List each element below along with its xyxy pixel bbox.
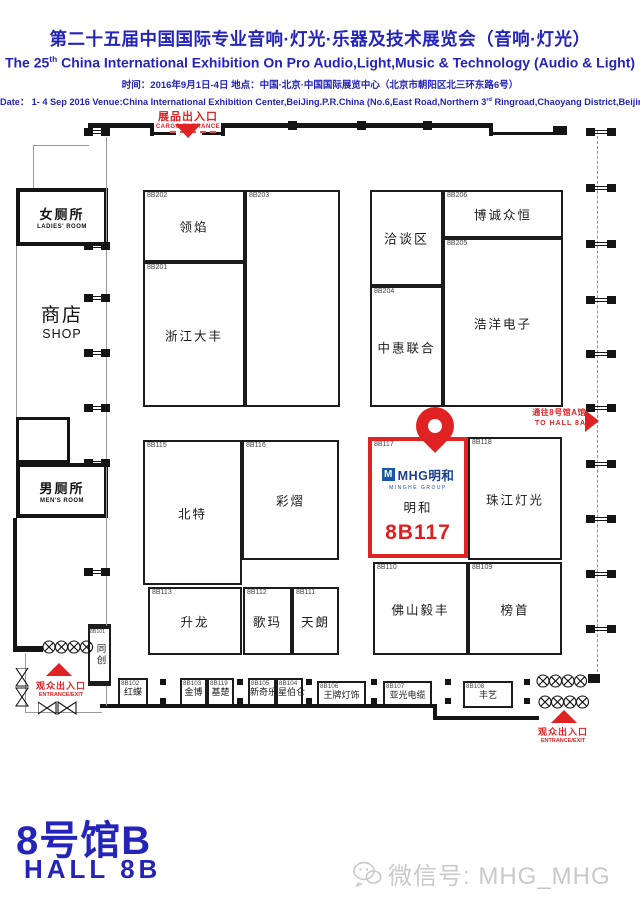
booth-id: 8B204 [374, 288, 394, 295]
wall-segment [33, 145, 89, 146]
entrance-en: ENTRANCE/EXIT [24, 692, 98, 698]
pillar-dot [160, 698, 166, 704]
hall-name-en: HALL 8B [24, 854, 161, 885]
column-marker [586, 296, 616, 304]
booth-8B117-highlighted: 8B117 M MHG明和 MINGHE GROUP 明和 8B117 [368, 437, 468, 558]
mens-room: 男厕所 MEN'S ROOM [16, 463, 108, 518]
booth-name: 红蝶 [120, 687, 146, 698]
cargo-entrance-zh: 展品出入口 [128, 108, 248, 124]
booth-id: 8B118 [472, 439, 492, 446]
meeting-area: 洽谈区 [370, 190, 443, 286]
pillar-dot [160, 679, 166, 685]
column-marker [586, 184, 616, 192]
column-marker [586, 240, 616, 248]
booth-name: 基楚 [209, 687, 232, 698]
shop-zh: 商店 [16, 300, 108, 327]
booth-id: 8B202 [147, 192, 167, 199]
visitor-entrance-left-label: 观众出入口 ENTRANCE/EXIT [24, 679, 98, 698]
wechat-icon [352, 860, 382, 887]
booth-8B203: 8B203 [245, 190, 340, 407]
booth-id: 8B111 [296, 589, 315, 596]
booth-id: 8B113 [152, 589, 172, 596]
booth-id: 8B109 [472, 564, 492, 571]
booth-name: 佛山毅丰 [391, 599, 449, 618]
wall-segment [13, 518, 17, 650]
column-marker [586, 128, 616, 136]
entrance-arrow-icon [46, 663, 72, 676]
booth-name: 金博 [182, 687, 205, 698]
booth-8B202: 8B202领焰 [143, 190, 245, 262]
door-marker [84, 459, 110, 467]
booth-8B102: 8B102红蝶 [118, 678, 148, 706]
booth-name: 新奇乐 [250, 687, 274, 698]
mhg-logo: M MHG明和 [372, 465, 464, 484]
booth-name: 榜首 [500, 599, 529, 618]
shop-en: SHOP [16, 327, 108, 341]
column-marker [586, 570, 616, 578]
door-marker [84, 349, 110, 357]
ladies-room: 女厕所 LADIES' ROOM [16, 188, 108, 246]
booth-id: 8B112 [247, 589, 267, 596]
mens-room-zh: 男厕所 [20, 478, 104, 497]
entrance-en: ENTRANCE/EXIT [528, 738, 598, 744]
booth-name: 星伯仑 [278, 687, 301, 698]
shop-label: 商店 SHOP [16, 300, 108, 341]
booth-8B118: 8B118珠江灯光 [468, 437, 562, 560]
booth-8B115: 8B115北特 [143, 440, 242, 585]
wall-segment [489, 132, 557, 135]
ladies-room-en: LADIES' ROOM [20, 224, 104, 230]
wall-segment [106, 686, 107, 706]
booth-id: 8B106 [319, 683, 364, 690]
booth-id: 8B104 [278, 680, 301, 687]
turnstile-icon [42, 640, 94, 654]
booth-id: 8B105 [250, 680, 274, 687]
booth-name: 亚光电缆 [385, 690, 430, 701]
pillar-dot [524, 679, 530, 685]
cargo-entrance-arrow-icon [175, 124, 201, 138]
wall-segment [13, 646, 43, 652]
booth-8B109: 8B109榜首 [468, 562, 562, 655]
to-hall-8a-arrow-icon [585, 410, 599, 432]
booth-id: 8B110 [377, 564, 397, 571]
door-marker [84, 294, 110, 302]
booth-8B201: 8B201浙江大丰 [143, 262, 245, 407]
booth-name: 同创 [93, 644, 107, 667]
booth-id: 8B102 [120, 680, 146, 687]
column-marker [586, 460, 616, 468]
entrance-zh: 观众出入口 [528, 725, 598, 738]
pillar-dot [371, 698, 377, 704]
pillar-dot [371, 679, 377, 685]
mhg-logo-text: MHG明和 [398, 465, 455, 484]
door-marker [84, 568, 110, 576]
booth-id: 8B205 [447, 240, 467, 247]
meeting-area-label: 洽谈区 [384, 229, 429, 248]
wall-segment [588, 674, 600, 683]
booth-id: 8B117 [374, 441, 394, 448]
booth-name: 珠江灯光 [486, 489, 544, 508]
booth-8B204: 8B204中惠联合 [370, 286, 443, 407]
pillar-dot [237, 698, 243, 704]
booth-8B119: 8B119基楚 [207, 678, 234, 706]
booth-name: 博诚众恒 [474, 205, 532, 224]
watermark: 微信号: MHG_MHG [352, 856, 611, 891]
booth-name: 丰艺 [465, 690, 511, 701]
pillar-dot [306, 698, 312, 704]
wall-segment [433, 716, 539, 720]
exhibition-floor-plan-page: 第二十五届中国国际专业音响·灯光·乐器及技术展览会（音响·灯光） The 25t… [0, 0, 640, 905]
booth-8B103: 8B103金博 [180, 678, 207, 706]
booth-name: 升龙 [180, 612, 209, 631]
ladies-room-zh: 女厕所 [20, 204, 104, 223]
column-marker [586, 515, 616, 523]
wall-segment [100, 704, 437, 708]
door-marker [84, 128, 110, 136]
wall-segment [553, 126, 567, 135]
pillar-dot [524, 698, 530, 704]
entrance-zh: 观众出入口 [24, 679, 98, 692]
booth-id: 8B107 [385, 683, 430, 690]
pillar-dot [306, 679, 312, 685]
turnstile-icon [538, 695, 590, 709]
booth-id: 8B103 [182, 680, 205, 687]
column-marker [586, 625, 616, 633]
booth-id: 8B203 [249, 192, 269, 199]
booth-id: 8B206 [447, 192, 467, 199]
pillar-dot [445, 679, 451, 685]
booth-8B112: 8B112歌玛 [243, 587, 292, 655]
booth-name: 明和 [372, 497, 464, 516]
booth-name: 王牌灯饰 [319, 690, 364, 701]
booth-id: 8B101 [90, 629, 105, 635]
mhg-logo-mark-icon: M [382, 468, 395, 481]
booth-id: 8B116 [246, 442, 266, 449]
booth-8B111: 8B111天朗 [292, 587, 339, 655]
booth-id: 8B115 [147, 442, 167, 449]
to-hall-8a-en: TO HALL 8A [528, 420, 586, 427]
booth-id: 8B108 [465, 683, 511, 690]
booth-8B110: 8B110佛山毅丰 [373, 562, 468, 655]
turnstile-icon [536, 674, 588, 688]
booth-name: 天朗 [301, 612, 330, 631]
booth-8B104: 8B104星伯仑 [276, 678, 303, 706]
booth-name: 彩熠 [276, 491, 305, 510]
booth-name: 歌玛 [253, 612, 282, 631]
gate-icon [38, 701, 78, 715]
door-marker [84, 242, 110, 250]
column-marker [288, 121, 297, 130]
entrance-arrow-icon [551, 710, 577, 723]
floor-plan: 展品出入口 CARGO ENTRANCE 通往8号馆A馆 TO HALL 8A … [0, 0, 640, 780]
pillar-dot [445, 698, 451, 704]
visitor-entrance-right-label: 观众出入口 ENTRANCE/EXIT [528, 725, 598, 744]
booth-name: 北特 [178, 503, 207, 522]
booth-8B101: 8B101同创 [88, 624, 111, 686]
booth-8B113: 8B113升龙 [148, 587, 242, 655]
to-hall-8a-zh: 通往8号馆A馆 [528, 407, 586, 418]
booth-8B205: 8B205浩洋电子 [443, 238, 563, 407]
booth-id: 8B201 [147, 264, 167, 271]
wall-segment [106, 137, 107, 626]
booth-8B105: 8B105新奇乐 [248, 678, 276, 706]
booth-id: 8B119 [209, 680, 232, 687]
booth-name: 浩洋电子 [474, 313, 532, 332]
service-room [16, 417, 70, 463]
booth-name: 浙江大丰 [165, 325, 223, 344]
booth-name: 中惠联合 [377, 337, 435, 356]
watermark-text: 微信号: MHG_MHG [388, 856, 611, 891]
booth-8B206: 8B206博诚众恒 [443, 190, 563, 238]
mens-room-en: MEN'S ROOM [20, 498, 104, 504]
door-marker [84, 404, 110, 412]
column-marker [357, 121, 366, 130]
booth-8B116: 8B116彩熠 [242, 440, 339, 560]
to-hall-8a-label: 通往8号馆A馆 TO HALL 8A [528, 407, 586, 427]
booth-name: 领焰 [179, 217, 208, 236]
mhg-logo-subtext: MINGHE GROUP [372, 485, 464, 491]
column-marker [423, 121, 432, 130]
booth-number-highlight: 8B117 [372, 521, 464, 545]
booth-8B108: 8B108丰艺 [463, 681, 513, 708]
wall-segment [33, 145, 34, 188]
column-marker [586, 350, 616, 358]
pillar-dot [237, 679, 243, 685]
